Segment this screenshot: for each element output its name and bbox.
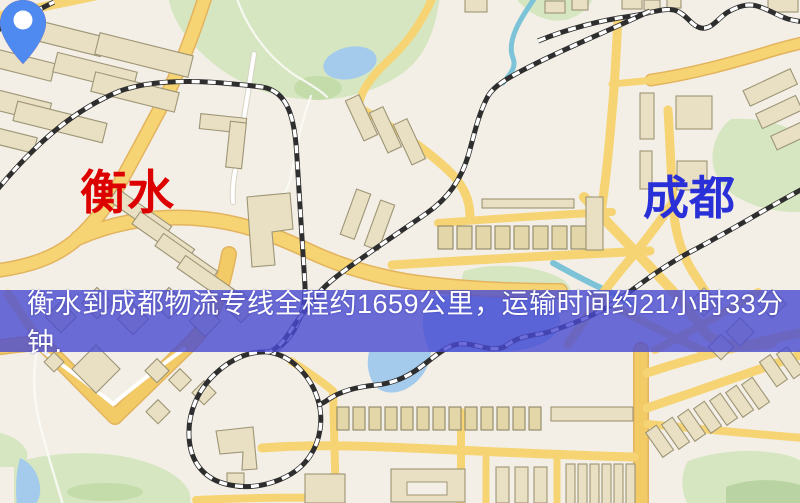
route-info-text: 衡水到成都物流专线全程约1659公里，运输时间约21小时33分钟. — [0, 282, 800, 360]
route-info-banner: 衡水到成都物流专线全程约1659公里，运输时间约21小时33分钟. — [0, 290, 800, 352]
origin-city-label: 衡水 — [80, 171, 174, 218]
destination-pin-icon — [0, 0, 46, 65]
map-screenshot: 衡水 成都 衡水到成都物流专线全程约1659公里，运输时间约21小时33分钟. — [0, 0, 800, 503]
map-canvas — [0, 0, 800, 503]
destination-city-label: 成都 — [643, 176, 735, 222]
